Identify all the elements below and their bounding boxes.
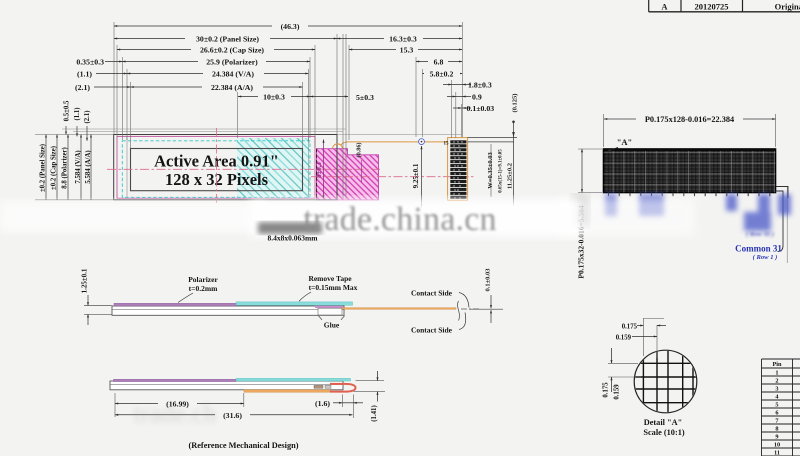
svg-text:0.1±0.03: 0.1±0.03: [467, 104, 495, 113]
svg-text:11: 11: [774, 450, 780, 456]
svg-text:Glue: Glue: [324, 321, 340, 330]
svg-text:0.9: 0.9: [472, 93, 482, 102]
svg-text:8.8 (Polarizer): 8.8 (Polarizer): [62, 147, 69, 189]
svg-text:0.175: 0.175: [622, 323, 638, 330]
svg-text:Contact Side: Contact Side: [411, 289, 453, 298]
svg-text:26.6±0.2 (Cap Size): 26.6±0.2 (Cap Size): [200, 45, 264, 54]
svg-text:0.159: 0.159: [616, 334, 632, 341]
svg-text:6.8: 6.8: [434, 57, 444, 66]
svg-text:"A": "A": [617, 137, 633, 147]
svg-text:( Row 1 ): ( Row 1 ): [753, 254, 778, 261]
svg-text:8±0.3: 8±0.3: [316, 162, 323, 178]
svg-text:Polarizer: Polarizer: [188, 275, 218, 284]
svg-text:1.25±0.1: 1.25±0.1: [81, 268, 89, 293]
svg-text:(2.1): (2.1): [84, 110, 91, 123]
svg-text:5±0.3: 5±0.3: [356, 93, 374, 102]
svg-text:Detail "A": Detail "A": [644, 418, 682, 427]
svg-text:Remove Tape: Remove Tape: [308, 274, 352, 283]
svg-text:5.584 (A/A): 5.584 (A/A): [85, 150, 92, 183]
svg-text:6: 6: [775, 410, 778, 417]
svg-text:2: 2: [775, 378, 778, 385]
svg-text:Common 31: Common 31: [735, 244, 782, 254]
svg-text:W=0.35±0.03: W=0.35±0.03: [487, 151, 494, 188]
svg-text:1: 1: [775, 370, 778, 377]
svg-text:25.9 (Polarizer): 25.9 (Polarizer): [206, 57, 258, 66]
svg-text:24.384 (V/A): 24.384 (V/A): [212, 69, 254, 78]
svg-text:(0.125): (0.125): [511, 94, 518, 113]
svg-text:(46.3): (46.3): [281, 22, 300, 31]
svg-text:0.35±0.3: 0.35±0.3: [76, 57, 104, 66]
svg-text:3: 3: [775, 386, 778, 393]
svg-text:9: 9: [775, 434, 778, 441]
svg-text:Contact Side: Contact Side: [411, 326, 453, 335]
svg-text:0.65x(15-1)=9.1±0.05: 0.65x(15-1)=9.1±0.05: [499, 149, 504, 193]
svg-text:(2.1): (2.1): [75, 83, 90, 92]
svg-text:±0.2 (Cap Size): ±0.2 (Cap Size): [51, 146, 58, 190]
svg-text:15.3: 15.3: [400, 45, 414, 54]
svg-text:( Row 32 ): ( Row 32 ): [746, 231, 774, 238]
svg-text:(31.6): (31.6): [223, 411, 242, 420]
svg-text:15: 15: [444, 141, 450, 146]
svg-text:9.25±0.1: 9.25±0.1: [412, 163, 420, 188]
svg-text:trade.china.cn: trade.china.cn: [303, 201, 496, 238]
svg-text:5: 5: [775, 402, 778, 409]
svg-text:30±0.2 (Panel Size): 30±0.2 (Panel Size): [196, 34, 259, 43]
svg-text:16.3±0.3: 16.3±0.3: [389, 34, 417, 43]
svg-text:P0.175x128-0.016=22.384: P0.175x128-0.016=22.384: [645, 115, 734, 124]
svg-text:±0.2 (Panel Size): ±0.2 (Panel Size): [40, 144, 47, 192]
svg-text:A: A: [661, 1, 668, 11]
svg-text:7.584 (V/A): 7.584 (V/A): [75, 150, 82, 183]
svg-text:0.5±0.5: 0.5±0.5: [64, 100, 71, 121]
svg-text:11.25±0.2: 11.25±0.2: [507, 163, 514, 189]
svg-text:8: 8: [775, 426, 778, 433]
svg-text:(1.6): (1.6): [315, 399, 330, 408]
svg-text:1.8±0.3: 1.8±0.3: [468, 80, 492, 89]
svg-text:22.384 (A/A): 22.384 (A/A): [211, 83, 253, 92]
svg-text:10±0.3: 10±0.3: [263, 92, 285, 101]
svg-text:20120725: 20120725: [695, 1, 729, 11]
svg-text:t=0.15mm Max: t=0.15mm Max: [309, 283, 358, 292]
svg-text:(1.1): (1.1): [74, 107, 81, 120]
svg-text:0.175: 0.175: [603, 382, 610, 398]
svg-text:Original: Original: [775, 1, 800, 11]
svg-text:trade.ch: trade.ch: [133, 399, 216, 428]
svg-text:7: 7: [775, 418, 778, 425]
svg-text:t=0.2mm: t=0.2mm: [189, 284, 218, 293]
svg-text:0.159: 0.159: [614, 384, 621, 400]
svg-text:Scale (10:1): Scale (10:1): [643, 428, 684, 437]
svg-text:10: 10: [774, 442, 780, 449]
svg-text:(0.86): (0.86): [356, 143, 363, 158]
svg-text:5.8±0.2: 5.8±0.2: [430, 69, 454, 78]
svg-text:0.1±0.03: 0.1±0.03: [484, 268, 491, 292]
svg-text:(Reference Mechanical Design): (Reference Mechanical Design): [189, 441, 299, 450]
svg-text:Pin: Pin: [772, 361, 782, 368]
svg-text:(1.41): (1.41): [371, 405, 378, 421]
svg-text:(1.1): (1.1): [77, 69, 92, 78]
